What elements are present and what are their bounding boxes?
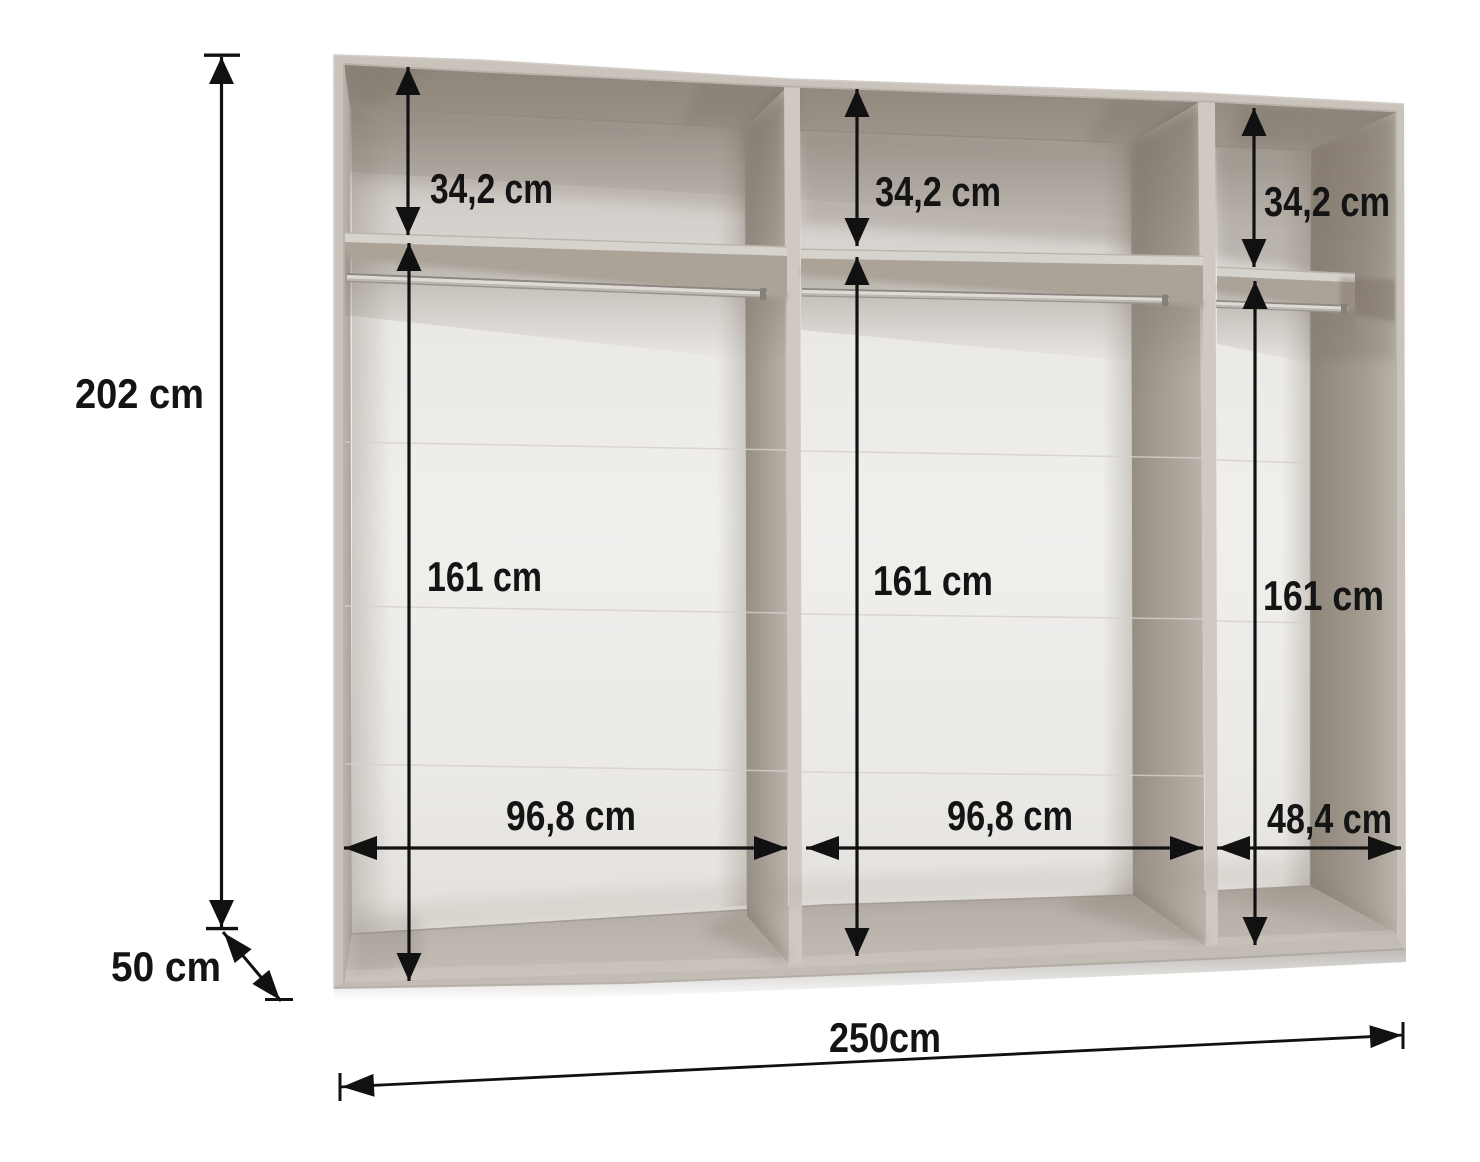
svg-text:161 cm: 161 cm: [1263, 572, 1384, 619]
svg-text:50 cm: 50 cm: [111, 943, 221, 990]
svg-text:161 cm: 161 cm: [427, 553, 542, 600]
svg-text:48,4 cm: 48,4 cm: [1267, 795, 1392, 842]
svg-text:34,2 cm: 34,2 cm: [430, 165, 553, 212]
svg-text:34,2 cm: 34,2 cm: [875, 168, 1001, 215]
svg-text:202 cm: 202 cm: [75, 370, 204, 417]
svg-text:161 cm: 161 cm: [873, 557, 993, 604]
svg-text:250cm: 250cm: [829, 1014, 941, 1061]
svg-text:96,8 cm: 96,8 cm: [947, 792, 1073, 839]
svg-text:34,2 cm: 34,2 cm: [1264, 178, 1390, 225]
svg-text:96,8 cm: 96,8 cm: [506, 792, 636, 839]
